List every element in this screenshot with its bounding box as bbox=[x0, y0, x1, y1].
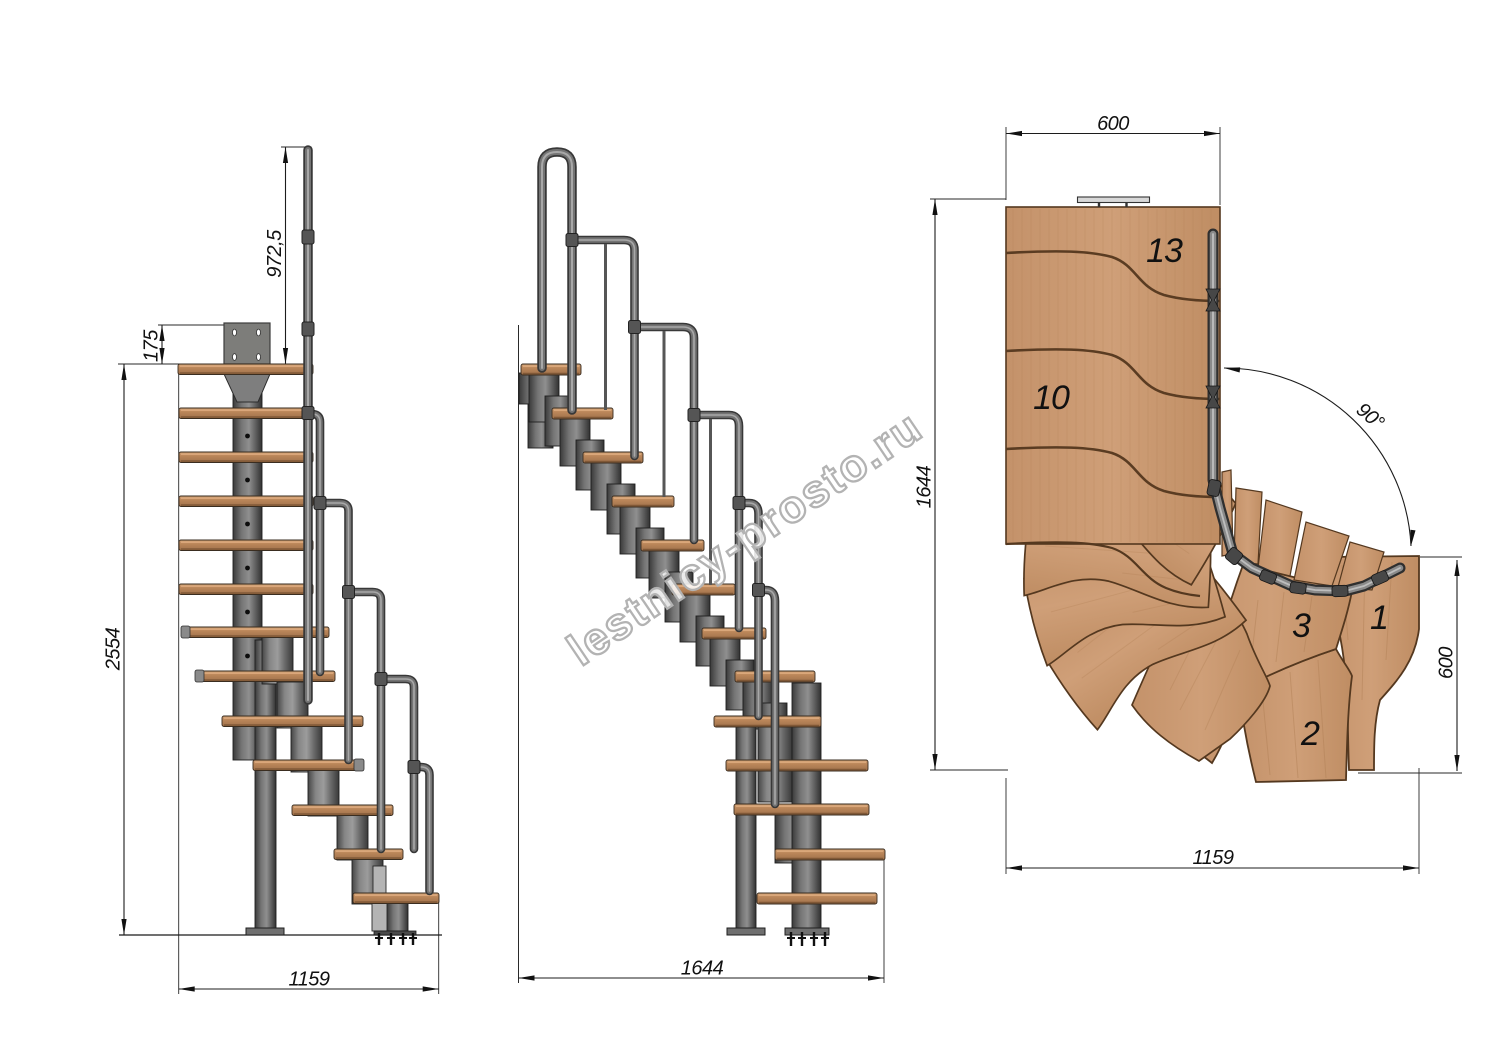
svg-text:972,5: 972,5 bbox=[264, 229, 286, 278]
svg-text:1: 1 bbox=[1370, 599, 1388, 637]
svg-text:1159: 1159 bbox=[288, 969, 329, 991]
svg-text:13: 13 bbox=[1146, 232, 1183, 270]
svg-text:1159: 1159 bbox=[1192, 847, 1233, 869]
svg-text:2: 2 bbox=[1300, 715, 1320, 753]
svg-text:3: 3 bbox=[1292, 607, 1311, 645]
svg-text:1644: 1644 bbox=[914, 465, 936, 508]
svg-text:1644: 1644 bbox=[681, 958, 724, 980]
svg-text:600: 600 bbox=[1436, 647, 1458, 679]
svg-text:175: 175 bbox=[141, 329, 163, 362]
svg-text:600: 600 bbox=[1097, 113, 1129, 135]
svg-text:2554: 2554 bbox=[103, 627, 125, 671]
svg-text:10: 10 bbox=[1033, 379, 1070, 417]
